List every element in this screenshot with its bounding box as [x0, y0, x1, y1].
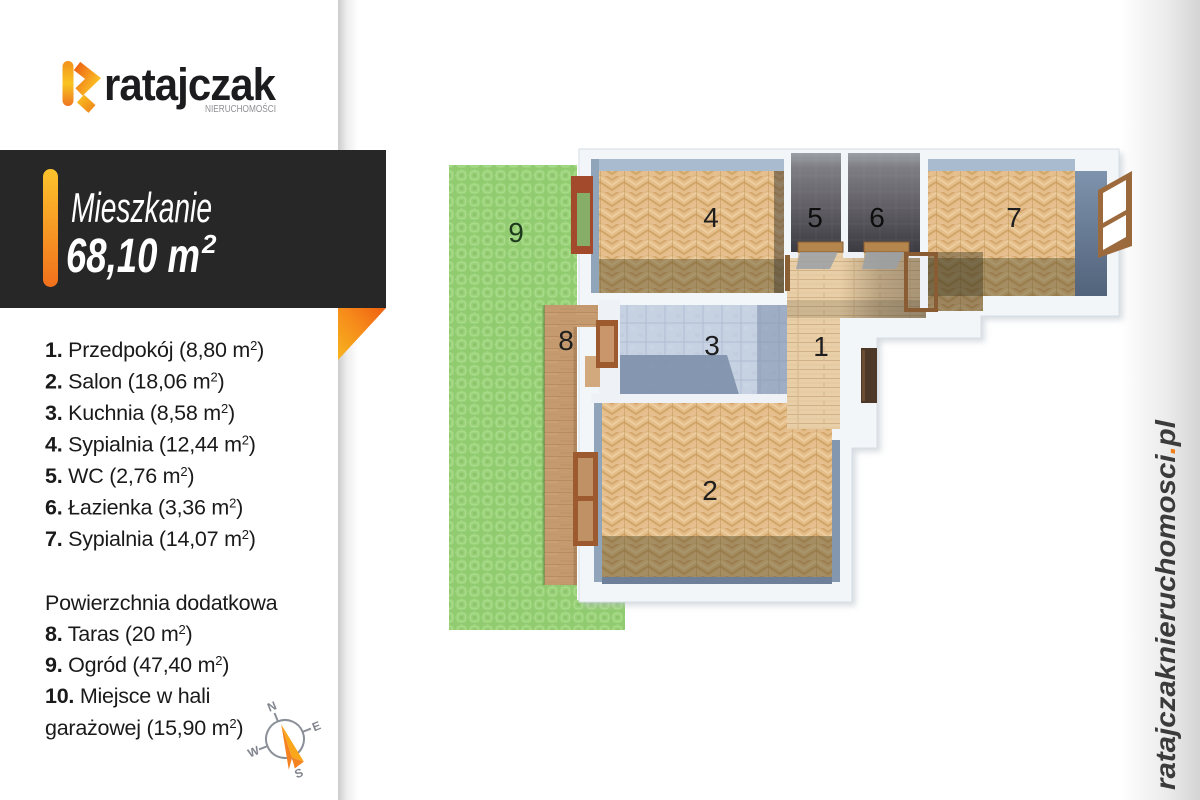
svg-text:2: 2: [201, 229, 217, 259]
svg-text:6: 6: [869, 202, 885, 233]
svg-text:garażowej (15,90 m2): garażowej (15,90 m2): [45, 716, 243, 740]
svg-text:68,10 m: 68,10 m: [66, 230, 200, 283]
svg-text:ratajczaknieruchomosci.pl: ratajczaknieruchomosci.pl: [1150, 419, 1181, 790]
svg-text:2. Salon (18,06 m2): 2. Salon (18,06 m2): [45, 370, 224, 394]
svg-text:1. Przedpokój (8,80 m2): 1. Przedpokój (8,80 m2): [45, 338, 264, 362]
svg-text:9. Ogród (47,40 m2): 9. Ogród (47,40 m2): [45, 653, 229, 677]
svg-text:3: 3: [704, 330, 720, 361]
svg-text:ratajczak: ratajczak: [104, 59, 277, 110]
svg-text:8. Taras (20 m2): 8. Taras (20 m2): [45, 622, 192, 646]
svg-text:1: 1: [813, 331, 829, 362]
svg-text:3. Kuchnia (8,58 m2): 3. Kuchnia (8,58 m2): [45, 401, 235, 425]
svg-text:4. Sypialnia (12,44 m2): 4. Sypialnia (12,44 m2): [45, 433, 256, 457]
svg-text:NIERUCHOMOŚCI: NIERUCHOMOŚCI: [205, 102, 276, 115]
svg-text:5. WC (2,76 m2): 5. WC (2,76 m2): [45, 464, 194, 488]
svg-text:6. Łazienka (3,36 m2): 6. Łazienka (3,36 m2): [45, 496, 243, 520]
svg-text:Powierzchnia dodatkowa: Powierzchnia dodatkowa: [45, 591, 278, 615]
svg-text:4: 4: [703, 202, 719, 233]
svg-text:Mieszkanie: Mieszkanie: [71, 184, 212, 231]
svg-text:8: 8: [558, 325, 574, 356]
svg-text:7. Sypialnia (14,07 m2): 7. Sypialnia (14,07 m2): [45, 527, 256, 551]
svg-text:2: 2: [702, 475, 718, 506]
svg-text:9: 9: [508, 217, 524, 248]
svg-text:5: 5: [807, 202, 823, 233]
svg-text:7: 7: [1006, 202, 1022, 233]
svg-text:10. Miejsce w hali: 10. Miejsce w hali: [45, 684, 210, 708]
